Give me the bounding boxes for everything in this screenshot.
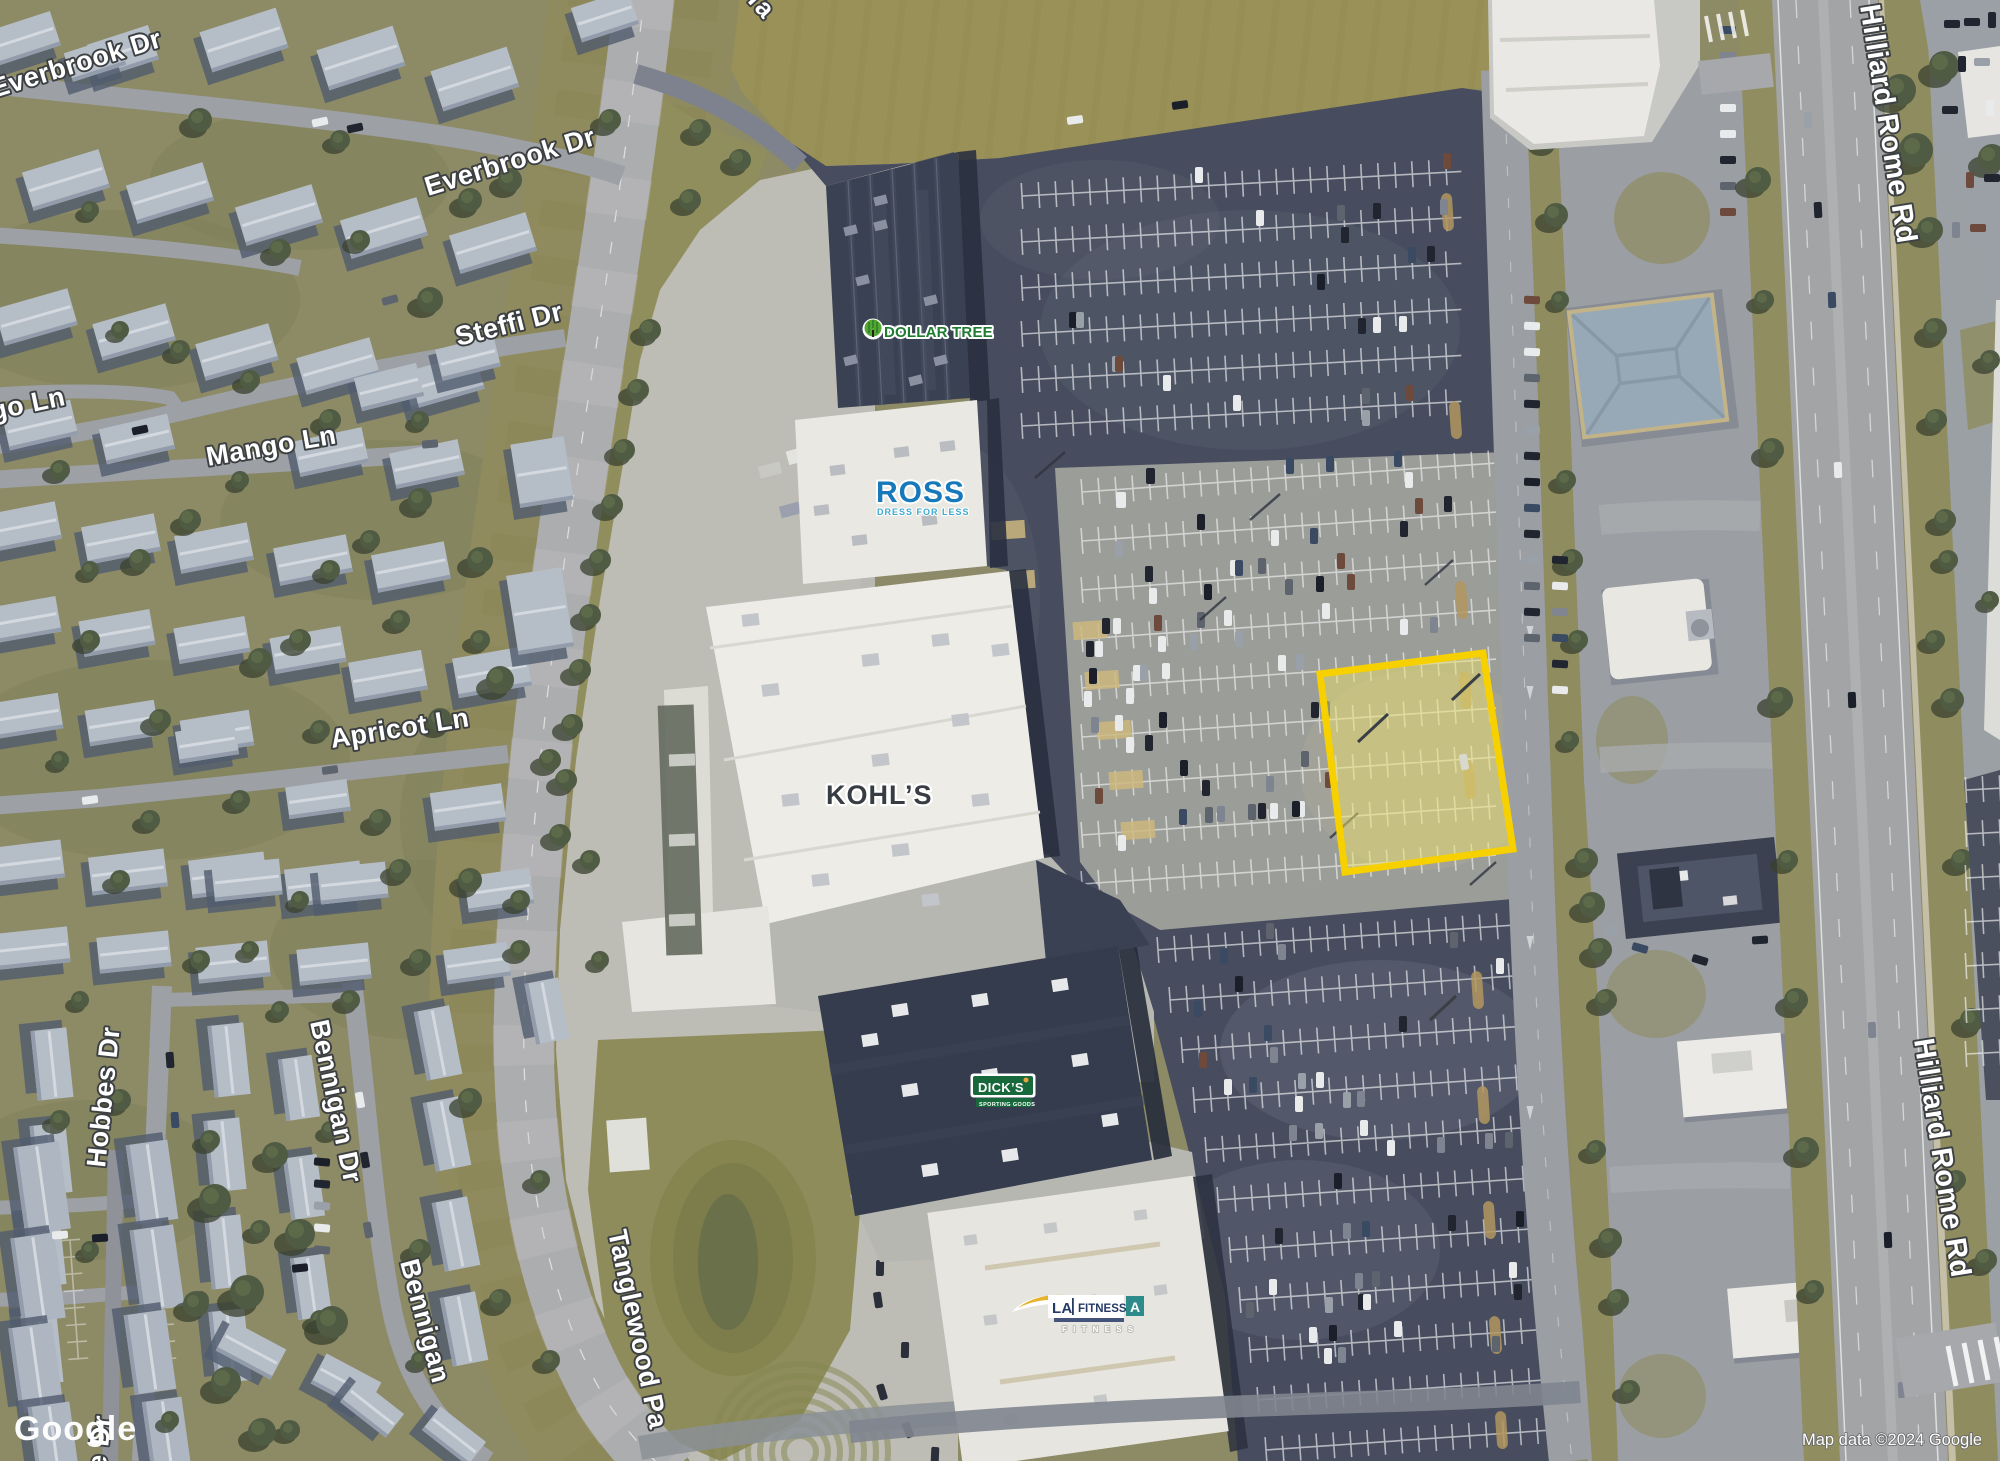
svg-text:ROSS: ROSS bbox=[876, 476, 965, 509]
svg-text:LA: LA bbox=[1052, 1300, 1072, 1317]
svg-text:F I T N E S S: F I T N E S S bbox=[1062, 1325, 1135, 1334]
svg-text:FITNESS: FITNESS bbox=[1078, 1303, 1127, 1315]
svg-text:Google: Google bbox=[14, 1410, 137, 1448]
svg-text:DRESS FOR LESS: DRESS FOR LESS bbox=[877, 507, 970, 517]
svg-text:DOLLAR TREE: DOLLAR TREE bbox=[884, 324, 993, 341]
svg-text:DICK’S: DICK’S bbox=[978, 1080, 1024, 1095]
svg-text:A: A bbox=[1130, 1299, 1140, 1315]
svg-text:KOHL’S: KOHL’S bbox=[826, 780, 933, 810]
svg-text:Map data ©2024 Google: Map data ©2024 Google bbox=[1802, 1431, 1982, 1449]
svg-text:SPORTING GOODS: SPORTING GOODS bbox=[979, 1102, 1035, 1108]
